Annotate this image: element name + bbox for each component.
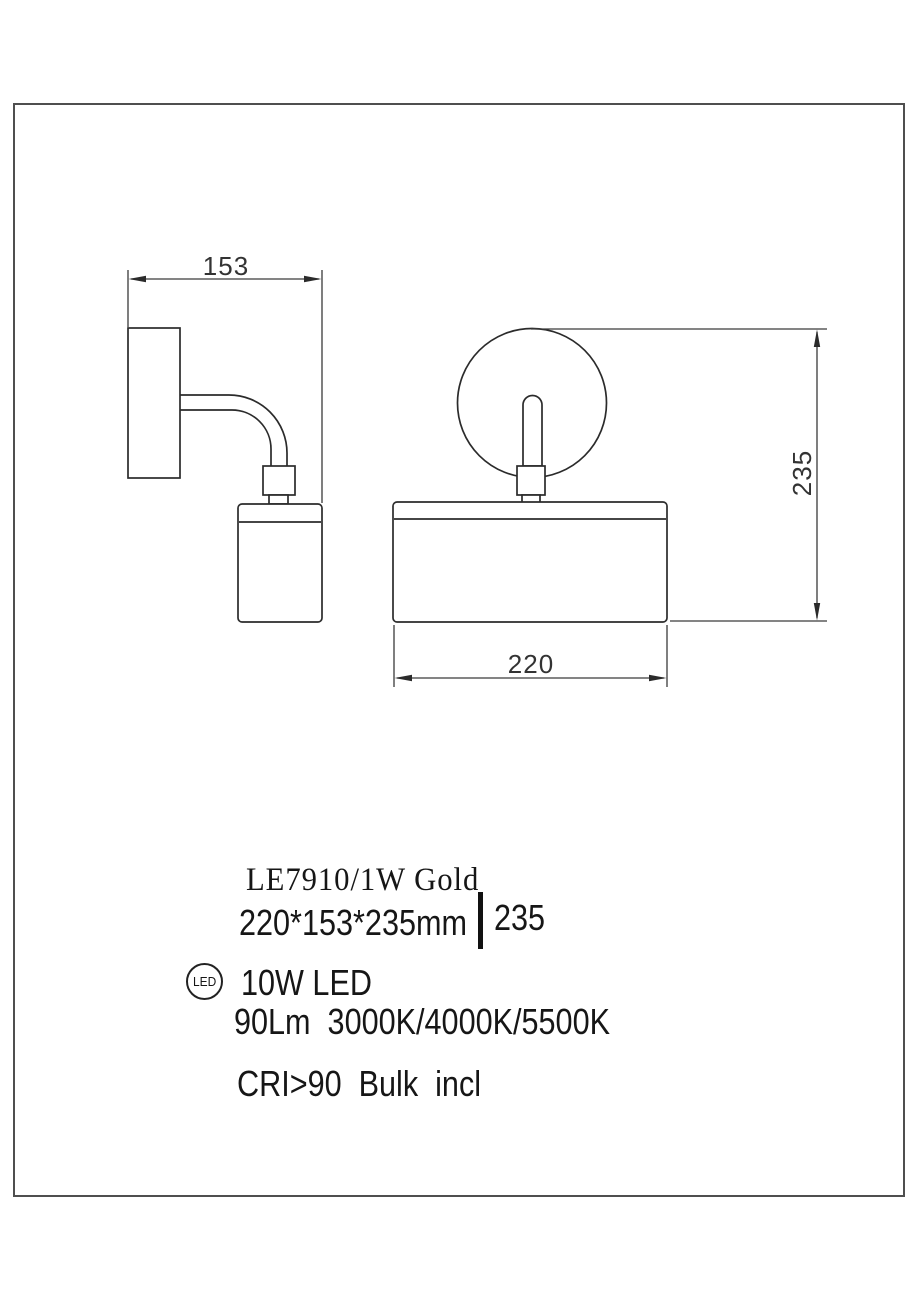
front-view-shade [393,502,667,622]
dimension-width-arrow-left [395,675,413,681]
led-badge-label: LED [193,974,216,989]
front-view-connector [517,466,545,495]
drawing-page: 153 235 220 LE7910/1W Gold 220*153*235mm… [0,0,919,1300]
lumen-color-spec: 90Lm 3000K/4000K/5500K [234,1001,610,1042]
dimension-width: 220 [394,625,667,687]
product-size: 220*153*235mm [239,902,467,943]
divider-bar [478,892,483,949]
led-badge-icon: LED [186,963,223,1000]
dimension-width-value: 220 [508,649,554,679]
dimension-height-arrow-bottom [814,603,820,621]
product-model: LE7910/1W Gold [246,862,479,900]
technical-drawing: 153 235 220 [0,0,919,1300]
front-view [393,329,667,623]
side-view-wall-plate [128,328,180,478]
dimension-height-arrow-top [814,330,820,348]
side-view [128,328,322,622]
dimension-depth-arrow-right [304,276,322,282]
dimension-depth-arrow-left [129,276,147,282]
dimension-depth-value: 153 [203,251,249,281]
front-view-bulb-stem [523,396,542,467]
height-value-label: 235 [494,897,545,938]
side-view-arm-inner [180,410,271,466]
dimension-width-arrow-right [649,675,667,681]
power-spec: 10W LED [241,962,372,1003]
cri-spec: CRI>90 Bulk incl [237,1063,481,1104]
dimension-height-value: 235 [787,450,817,496]
side-view-connector [263,466,295,495]
side-view-neck [269,495,288,504]
